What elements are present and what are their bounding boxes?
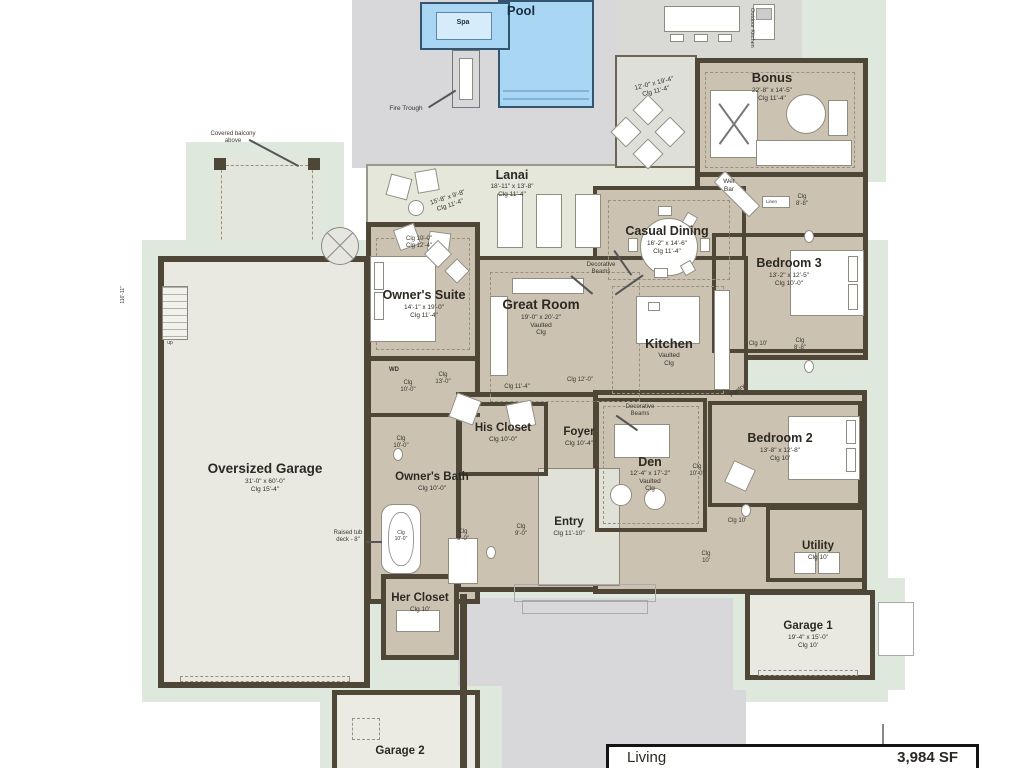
clg-label: Clg 10': [749, 341, 768, 348]
room-label-owners-suite: Owner's Suite: [383, 289, 466, 302]
pillow: [848, 256, 858, 282]
clg-label: Clg 10'-0": [689, 464, 704, 478]
clg-label: Clg 10'-0": [400, 380, 415, 394]
room-dims-bonus: 22'-8" x 14'-5" Clg 11'-4": [752, 87, 792, 102]
owners-clg-note: Clg 10'-0" Clg 12'-4": [406, 236, 432, 250]
room-label-owners-bath: Owner's Bath: [395, 471, 469, 483]
green-buffer-topright: [802, 0, 886, 58]
left-dimension: 116'-11": [121, 286, 127, 304]
outdoor-chair: [694, 34, 708, 42]
area-table: Living 3,984 SF: [606, 744, 979, 768]
bonus-bath-clg: Clg 8'-8": [796, 194, 808, 208]
room-label-casual-dining: Casual Dining: [625, 225, 708, 238]
toilet-icon: [741, 504, 751, 517]
room-dims-owners-bath: Clg 10'-0": [418, 485, 446, 493]
room-dims-bedroom2: 13'-8" x 12'-8" Clg 10': [760, 447, 800, 462]
clg-label: Clg 9'-0": [457, 529, 469, 543]
clg-label: Clg 10'-0": [393, 436, 408, 450]
bonus-round-table: [786, 94, 826, 134]
room-label-bedroom3: Bedroom 3: [756, 257, 821, 270]
decorative-beams-label: Decorative Beams: [626, 404, 655, 418]
room-dims-owners-suite: 14'-1" x 19'-0" Clg 11'-4": [404, 304, 444, 319]
bonus-cabinet: [828, 100, 848, 136]
room-dims-casual-dining: 16'-2" x 14'-6" Clg 11'-4": [647, 240, 687, 255]
room-dims-entry: Clg 11'-10": [553, 530, 584, 538]
table-leader: [882, 724, 884, 744]
entry-steps: [522, 600, 648, 614]
balcony-note: Covered balcony above: [210, 131, 255, 145]
clg-label: Clg 12'-0": [567, 377, 593, 384]
clg-label: Clg 9'-0": [515, 524, 527, 538]
fire-trough-label: Fire Trough: [389, 105, 422, 113]
owner-partition: [366, 356, 480, 361]
area-table-label: Living: [627, 749, 666, 766]
tub-clg: Clg 10'-0": [395, 531, 408, 543]
room-label-bedroom2: Bedroom 2: [747, 432, 812, 445]
wd-label: WD: [389, 367, 399, 374]
den-chair: [610, 484, 632, 506]
dining-chair: [654, 268, 668, 278]
toilet-icon: [804, 230, 814, 243]
room-label-foyer: Foyer: [563, 426, 594, 438]
garage-door-dash: [180, 676, 350, 682]
side-stoop: [878, 602, 914, 656]
garage-stairs: [162, 286, 188, 340]
balcony-post: [214, 158, 226, 170]
room-label-garage1: Garage 1: [783, 620, 832, 632]
room-dims-den: 12'-4" x 17'-2" Vaulted Clg: [630, 470, 670, 493]
room-label-kitchen: Kitchen: [645, 337, 693, 351]
room-label-utility: Utility: [802, 540, 834, 552]
courtyard-west-wall: [460, 594, 467, 768]
room-label-her-closet: Her Closet: [391, 592, 449, 604]
pillow: [848, 284, 858, 310]
lounger: [536, 194, 562, 248]
clg-label: Clg 8'-8": [794, 338, 806, 352]
wet-bar-label: Wet Bar: [723, 178, 734, 193]
room-label-den: Den: [638, 456, 662, 469]
outdoor-chair: [718, 34, 732, 42]
room-label-pool: Pool: [507, 4, 535, 18]
room-label-great-room: Great Room: [502, 298, 579, 312]
room-dims-foyer: Clg 10'-4": [565, 440, 593, 448]
clg-label: Clg 13'-0": [435, 372, 450, 386]
patio-chair: [414, 168, 439, 193]
dining-chair: [658, 206, 672, 216]
floor-plan: Pool Spa Fire Trough Lanai 18'-11" x 13'…: [0, 0, 1024, 768]
area-table-value: 3,984 SF: [897, 749, 958, 766]
room-dims-great-room: 19'-0" x 20'-2" Vaulted Clg: [521, 314, 561, 337]
clg-label: Clg 10': [728, 518, 747, 525]
fire-trough-inner: [459, 58, 473, 100]
clg-label: Clg 10': [701, 551, 710, 565]
dining-chair: [700, 238, 710, 252]
room-dims-his-closet: Clg 10'-0": [489, 436, 517, 444]
bonus-sofa: [756, 140, 852, 166]
room-dims-bedroom3: 13'-2" x 12'-5" Clg 10'-0": [769, 272, 809, 287]
toilet-icon: [393, 448, 403, 461]
room-dims-her-closet: Clg 10': [410, 606, 430, 614]
room-label-lanai: Lanai: [496, 169, 529, 182]
garage2-marks: [352, 718, 380, 740]
room-dims-utility: Clg 10': [808, 554, 828, 562]
room-label-garage2: Garage 2: [375, 745, 424, 757]
toilet-icon: [804, 360, 814, 373]
pillow: [846, 420, 856, 444]
garage1-door-dash: [758, 670, 858, 676]
kitchen-counter: [714, 290, 730, 390]
den-desk: [614, 424, 670, 458]
lounger: [575, 194, 601, 248]
up-label: up: [167, 341, 173, 347]
balcony-post: [308, 158, 320, 170]
kitchen-sink: [648, 302, 660, 311]
room-dims-kitchen: Vaulted Clg: [658, 352, 680, 367]
grill: [756, 8, 772, 20]
clg-label: Clg 11'-4": [504, 384, 530, 391]
pool-step: [503, 90, 589, 92]
pool-step: [503, 98, 589, 100]
tub-note: Raised tub deck - 8": [334, 530, 363, 544]
tub-leader: [366, 541, 382, 543]
toilet-icon: [486, 546, 496, 559]
room-label-oversized-garage: Oversized Garage: [208, 462, 323, 476]
linen-label: Linen: [766, 199, 777, 204]
lounger: [497, 194, 523, 248]
decorative-beams-label: Decorative Beams: [587, 262, 616, 276]
outdoor-dining-table: [664, 6, 740, 32]
dining-chair: [628, 238, 638, 252]
great-room-sofa: [512, 278, 584, 294]
room-label-bonus: Bonus: [752, 71, 792, 85]
outdoor-chair: [670, 34, 684, 42]
shower: [448, 538, 478, 584]
room-dims-oversized-garage: 31'-0" x 60'-0" Clg 15'-4": [245, 478, 285, 493]
pillow: [846, 448, 856, 472]
room-label-spa: Spa: [457, 19, 470, 26]
room-dims-lanai: 18'-11" x 13'-8" Clg 11'-4": [490, 183, 533, 198]
room-label-entry: Entry: [554, 516, 583, 528]
room-dims-garage1: 19'-4" x 15'-0" Clg 10': [788, 634, 828, 649]
room-label-his-closet: His Closet: [475, 422, 531, 434]
pillow: [374, 262, 384, 290]
outdoor-kitchen-label: Outdoor Kitchen: [749, 8, 755, 48]
patio-table: [408, 200, 424, 216]
